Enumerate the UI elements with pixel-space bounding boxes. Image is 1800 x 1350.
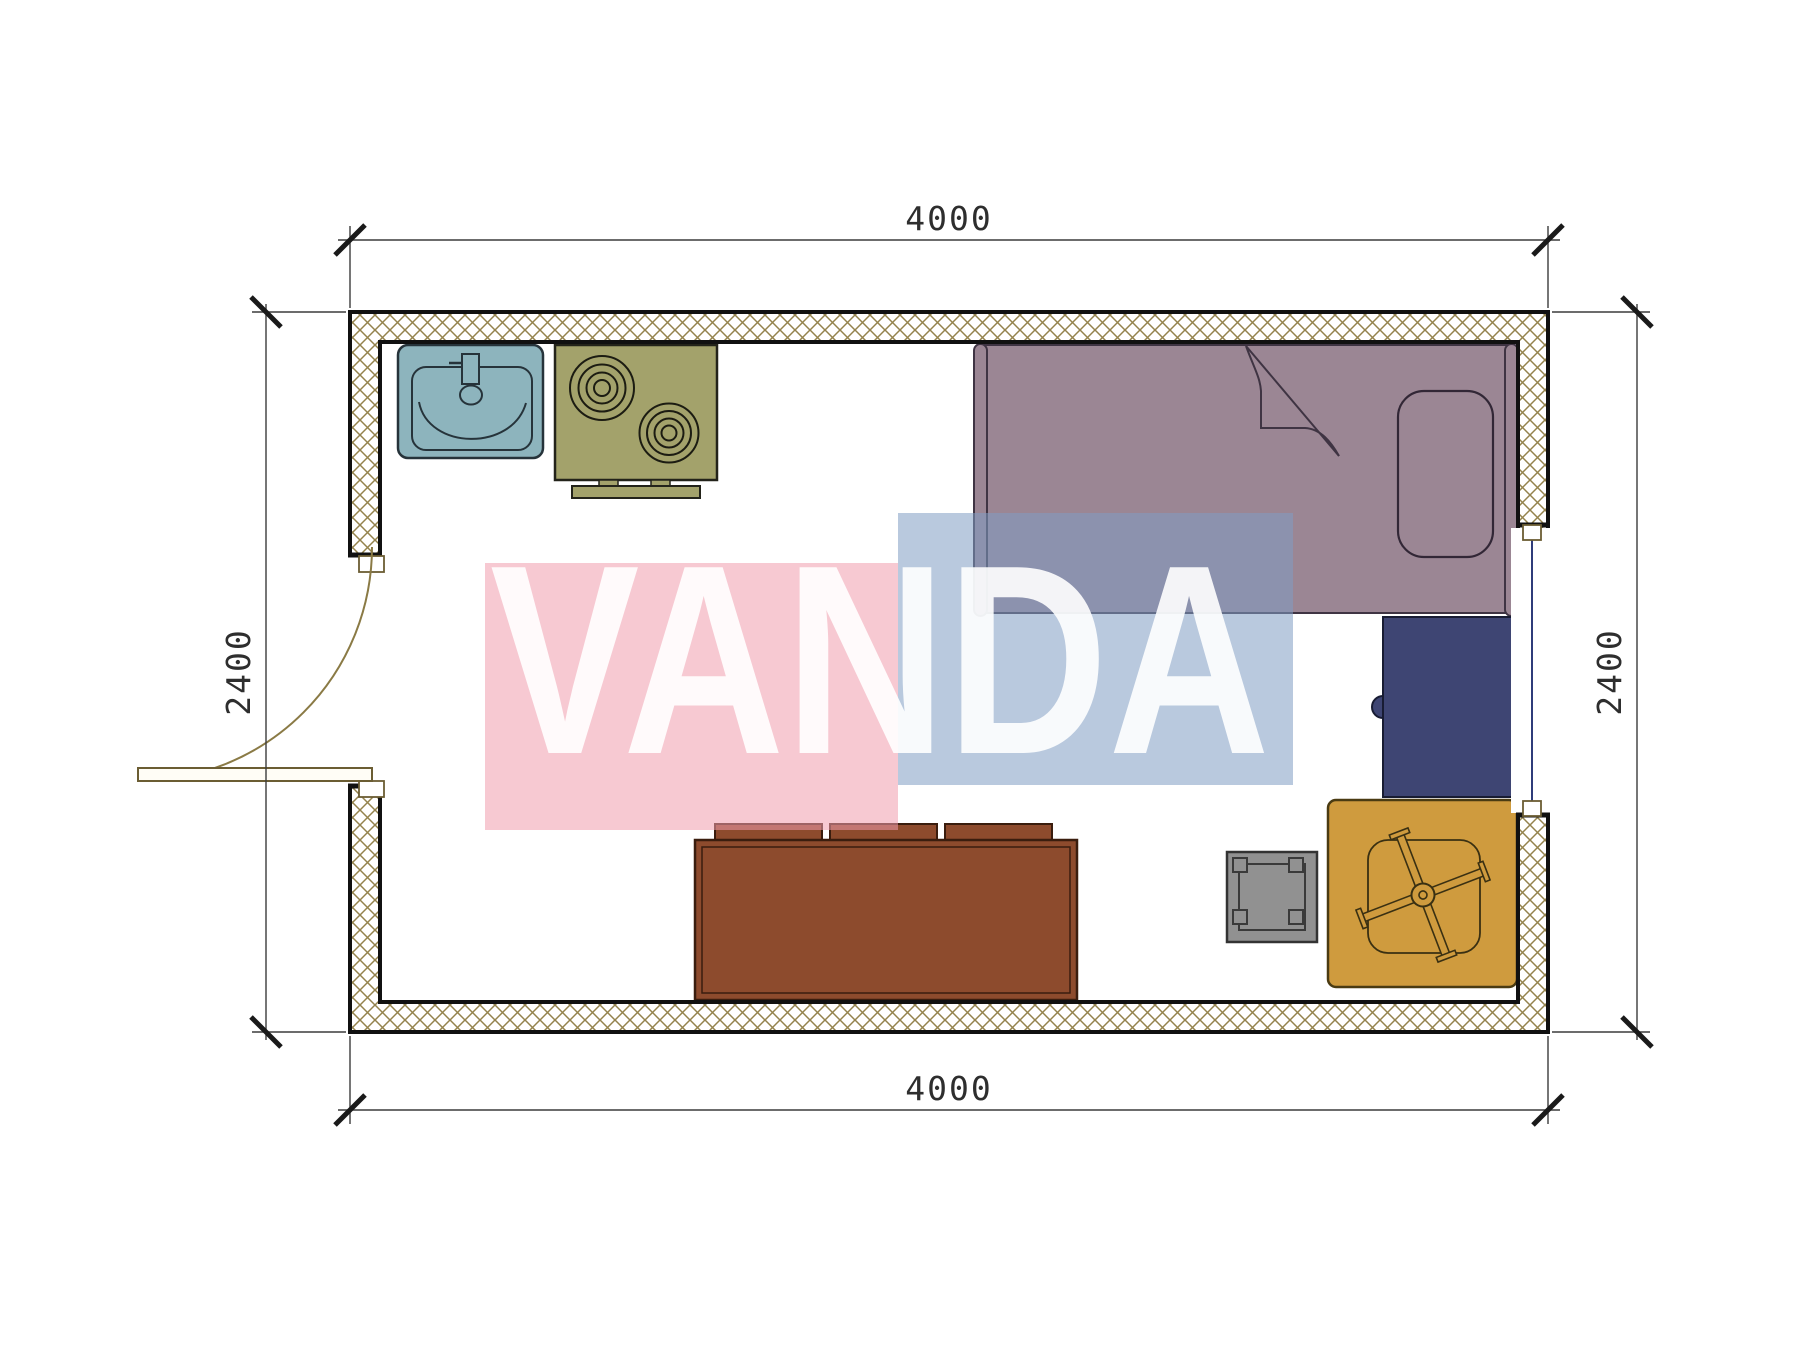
office-chair-symbol <box>1328 800 1517 987</box>
dim-label-top: 4000 <box>905 199 992 238</box>
watermark-text: VANDA <box>490 510 1270 811</box>
sink-drain <box>460 386 482 405</box>
desk-symbol <box>1372 617 1517 797</box>
sink-symbol <box>398 345 543 458</box>
sofa-back-cushion <box>945 824 1052 841</box>
window-jamb <box>1523 525 1541 540</box>
floor-plan-canvas: 4000 4000 2400 2400 VANDA <box>0 0 1800 1350</box>
door-opening <box>343 557 387 784</box>
desk-top <box>1383 617 1517 797</box>
stool-symbol <box>1227 852 1317 942</box>
stool-leg <box>1289 858 1303 872</box>
door-jamb <box>359 781 384 797</box>
door-leaf <box>138 768 372 781</box>
dim-label-right: 2400 <box>1590 628 1629 715</box>
sofa-body <box>695 840 1077 1000</box>
window-jamb <box>1523 801 1541 816</box>
stove-symbol <box>555 345 717 498</box>
stool-leg <box>1233 858 1247 872</box>
faucet <box>462 354 479 384</box>
stool-leg <box>1289 910 1303 924</box>
stove-pedestal <box>572 486 700 498</box>
bed-pillow <box>1398 391 1493 557</box>
stool-leg <box>1233 910 1247 924</box>
floor-plan-sheet: 4000 4000 2400 2400 VANDA <box>0 0 1800 1350</box>
watermark: VANDA <box>485 510 1293 830</box>
sofa-symbol <box>695 824 1077 1000</box>
dim-label-left: 2400 <box>219 628 258 715</box>
dim-label-bottom: 4000 <box>905 1069 992 1108</box>
